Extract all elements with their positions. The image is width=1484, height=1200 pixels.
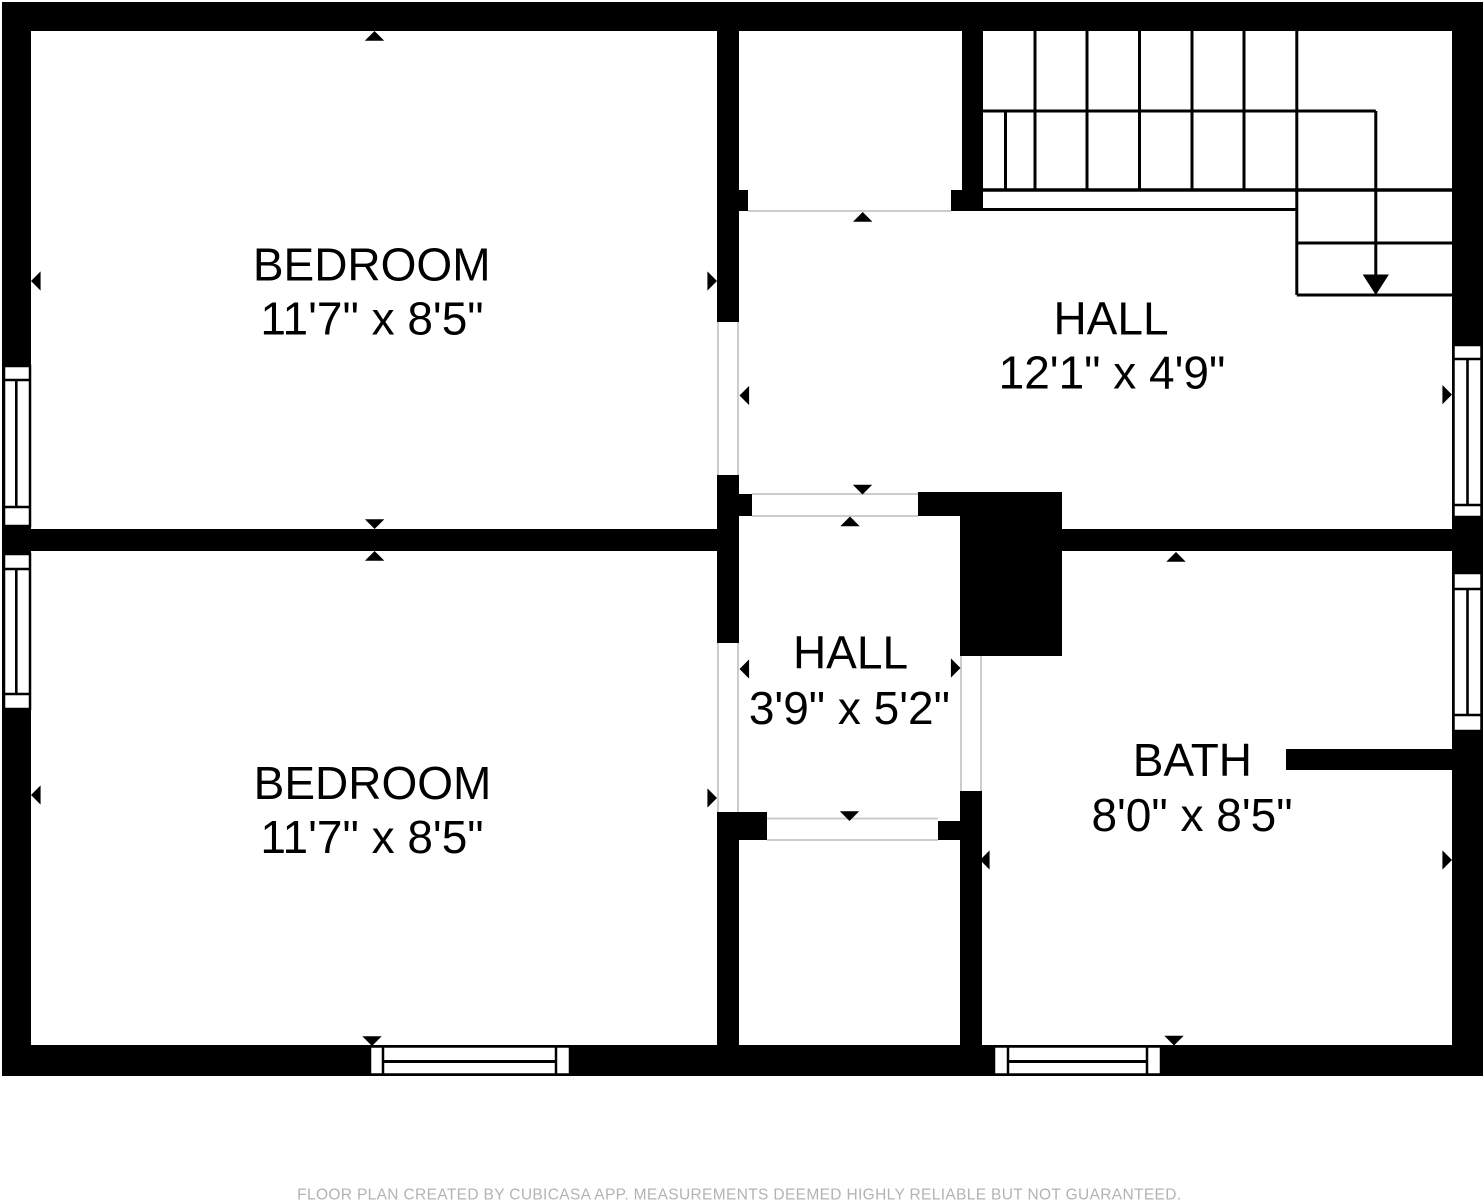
svg-text:FLOOR PLAN CREATED BY CUBICASA: FLOOR PLAN CREATED BY CUBICASA APP. MEAS… xyxy=(297,1186,1181,1200)
svg-text:BEDROOM: BEDROOM xyxy=(253,239,491,291)
svg-text:3'9" x 5'2": 3'9" x 5'2" xyxy=(749,682,950,734)
svg-text:HALL: HALL xyxy=(793,627,908,679)
svg-text:11'7" x 8'5": 11'7" x 8'5" xyxy=(260,293,483,345)
svg-text:11'7" x 8'5": 11'7" x 8'5" xyxy=(260,811,483,863)
svg-text:8'0" x 8'5": 8'0" x 8'5" xyxy=(1091,789,1292,841)
svg-text:BEDROOM: BEDROOM xyxy=(254,757,492,809)
svg-text:12'1" x 4'9": 12'1" x 4'9" xyxy=(999,347,1226,399)
svg-text:BATH: BATH xyxy=(1133,734,1252,786)
svg-text:HALL: HALL xyxy=(1053,293,1168,345)
